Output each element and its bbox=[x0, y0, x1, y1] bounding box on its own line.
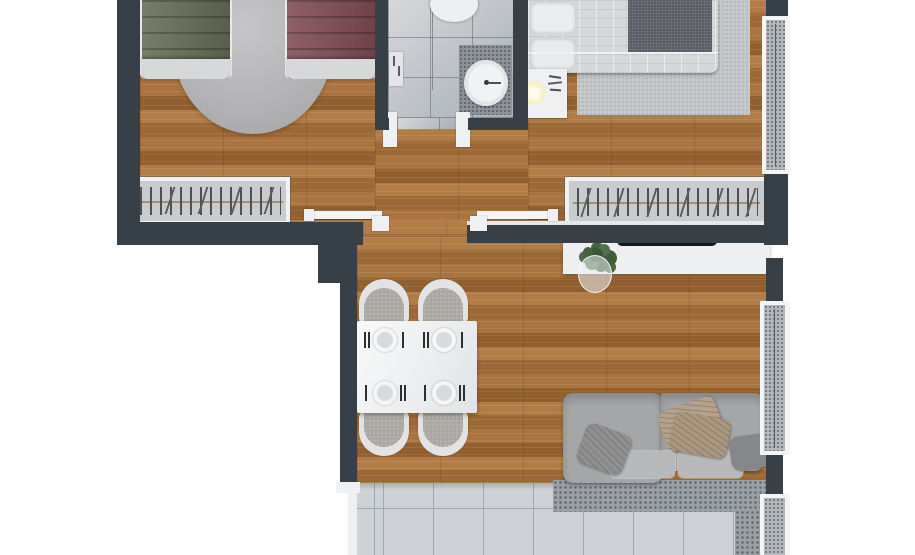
wall-right-living-upper bbox=[766, 258, 783, 305]
window-living-frame bbox=[760, 301, 790, 455]
place-setting bbox=[421, 379, 467, 407]
door-left-end-cap bbox=[304, 209, 314, 221]
floor-plan-canvas bbox=[0, 0, 915, 555]
wall-hall-south bbox=[467, 225, 766, 243]
book-decor-icon bbox=[549, 75, 561, 79]
place-setting bbox=[362, 379, 408, 407]
chair-cushion bbox=[364, 410, 404, 447]
door-right-jamb bbox=[470, 216, 487, 231]
single-bed-maroon bbox=[285, 0, 377, 79]
place-setting bbox=[421, 326, 467, 354]
curtain-rod-icon bbox=[775, 24, 776, 166]
wall-twin-south bbox=[117, 222, 363, 245]
knife-icon bbox=[400, 385, 402, 401]
knife-icon bbox=[459, 385, 461, 401]
fork-icon bbox=[424, 385, 426, 401]
sofa bbox=[563, 393, 764, 484]
balcony-left-trim bbox=[348, 483, 357, 555]
bed-pillow bbox=[530, 2, 576, 34]
shower-screen bbox=[389, 52, 403, 86]
bed-pillow bbox=[530, 38, 576, 70]
plate-icon bbox=[432, 381, 456, 405]
wall-right-mid bbox=[764, 170, 788, 245]
washbasin bbox=[464, 60, 508, 106]
plate-icon bbox=[432, 328, 456, 352]
dining-chair bbox=[359, 279, 409, 325]
sofa-rug bbox=[553, 480, 766, 512]
double-bed bbox=[528, 0, 718, 73]
window-master-frame bbox=[762, 16, 790, 174]
fork-icon bbox=[365, 385, 367, 401]
wardrobe-hangers-slant-icon bbox=[132, 187, 281, 214]
faucet-spout-icon bbox=[489, 82, 501, 84]
dining-chair bbox=[418, 279, 468, 325]
sheet-fold-line bbox=[528, 52, 718, 54]
bathroom-door-threshold bbox=[397, 118, 456, 130]
fork-icon bbox=[368, 332, 370, 348]
bed-foot-board bbox=[142, 59, 230, 79]
shower-handle-icon bbox=[398, 66, 400, 76]
shower-handle-icon bbox=[393, 56, 395, 66]
wall-living-west bbox=[340, 245, 357, 483]
book-decor-icon bbox=[548, 81, 562, 84]
wall-left-exterior bbox=[117, 0, 140, 245]
fork-icon bbox=[427, 332, 429, 348]
wall-right-living-lower bbox=[766, 452, 783, 497]
bed-foot-board bbox=[287, 59, 375, 79]
book-decor-icon bbox=[550, 89, 561, 92]
wall-bathroom-south-left bbox=[375, 118, 389, 130]
plate-icon bbox=[373, 381, 397, 405]
window-balcony-curtain bbox=[764, 498, 785, 555]
plate-icon bbox=[373, 328, 397, 352]
wardrobe-twin bbox=[119, 177, 290, 225]
chair-cushion bbox=[364, 288, 404, 325]
chair-cushion bbox=[423, 288, 463, 325]
window-balcony-frame bbox=[760, 494, 790, 555]
fork-icon bbox=[364, 332, 366, 348]
knife-icon bbox=[404, 385, 406, 401]
sliding-door-right bbox=[477, 211, 554, 219]
knife-icon bbox=[463, 385, 465, 401]
knife-icon bbox=[402, 332, 404, 348]
door-left-jamb bbox=[372, 216, 389, 231]
wall-bathroom-east bbox=[513, 0, 528, 130]
throw-blanket bbox=[628, 0, 712, 52]
wardrobe-hangers-slant-icon bbox=[580, 188, 757, 217]
wall-living-west-cap bbox=[336, 482, 360, 493]
place-setting bbox=[362, 326, 408, 354]
wardrobe-master bbox=[565, 177, 768, 227]
dining-table bbox=[357, 321, 477, 413]
knife-icon bbox=[461, 332, 463, 348]
wall-bathroom-south-right bbox=[468, 118, 528, 130]
plant-vase bbox=[578, 255, 612, 293]
single-bed-green bbox=[140, 0, 232, 79]
wall-bathroom-west bbox=[375, 0, 388, 130]
sliding-door-left bbox=[306, 211, 382, 219]
curtain-rod-icon bbox=[774, 309, 775, 447]
door-right-end-cap bbox=[548, 209, 558, 221]
fork-icon bbox=[423, 332, 425, 348]
chair-cushion bbox=[423, 410, 463, 447]
